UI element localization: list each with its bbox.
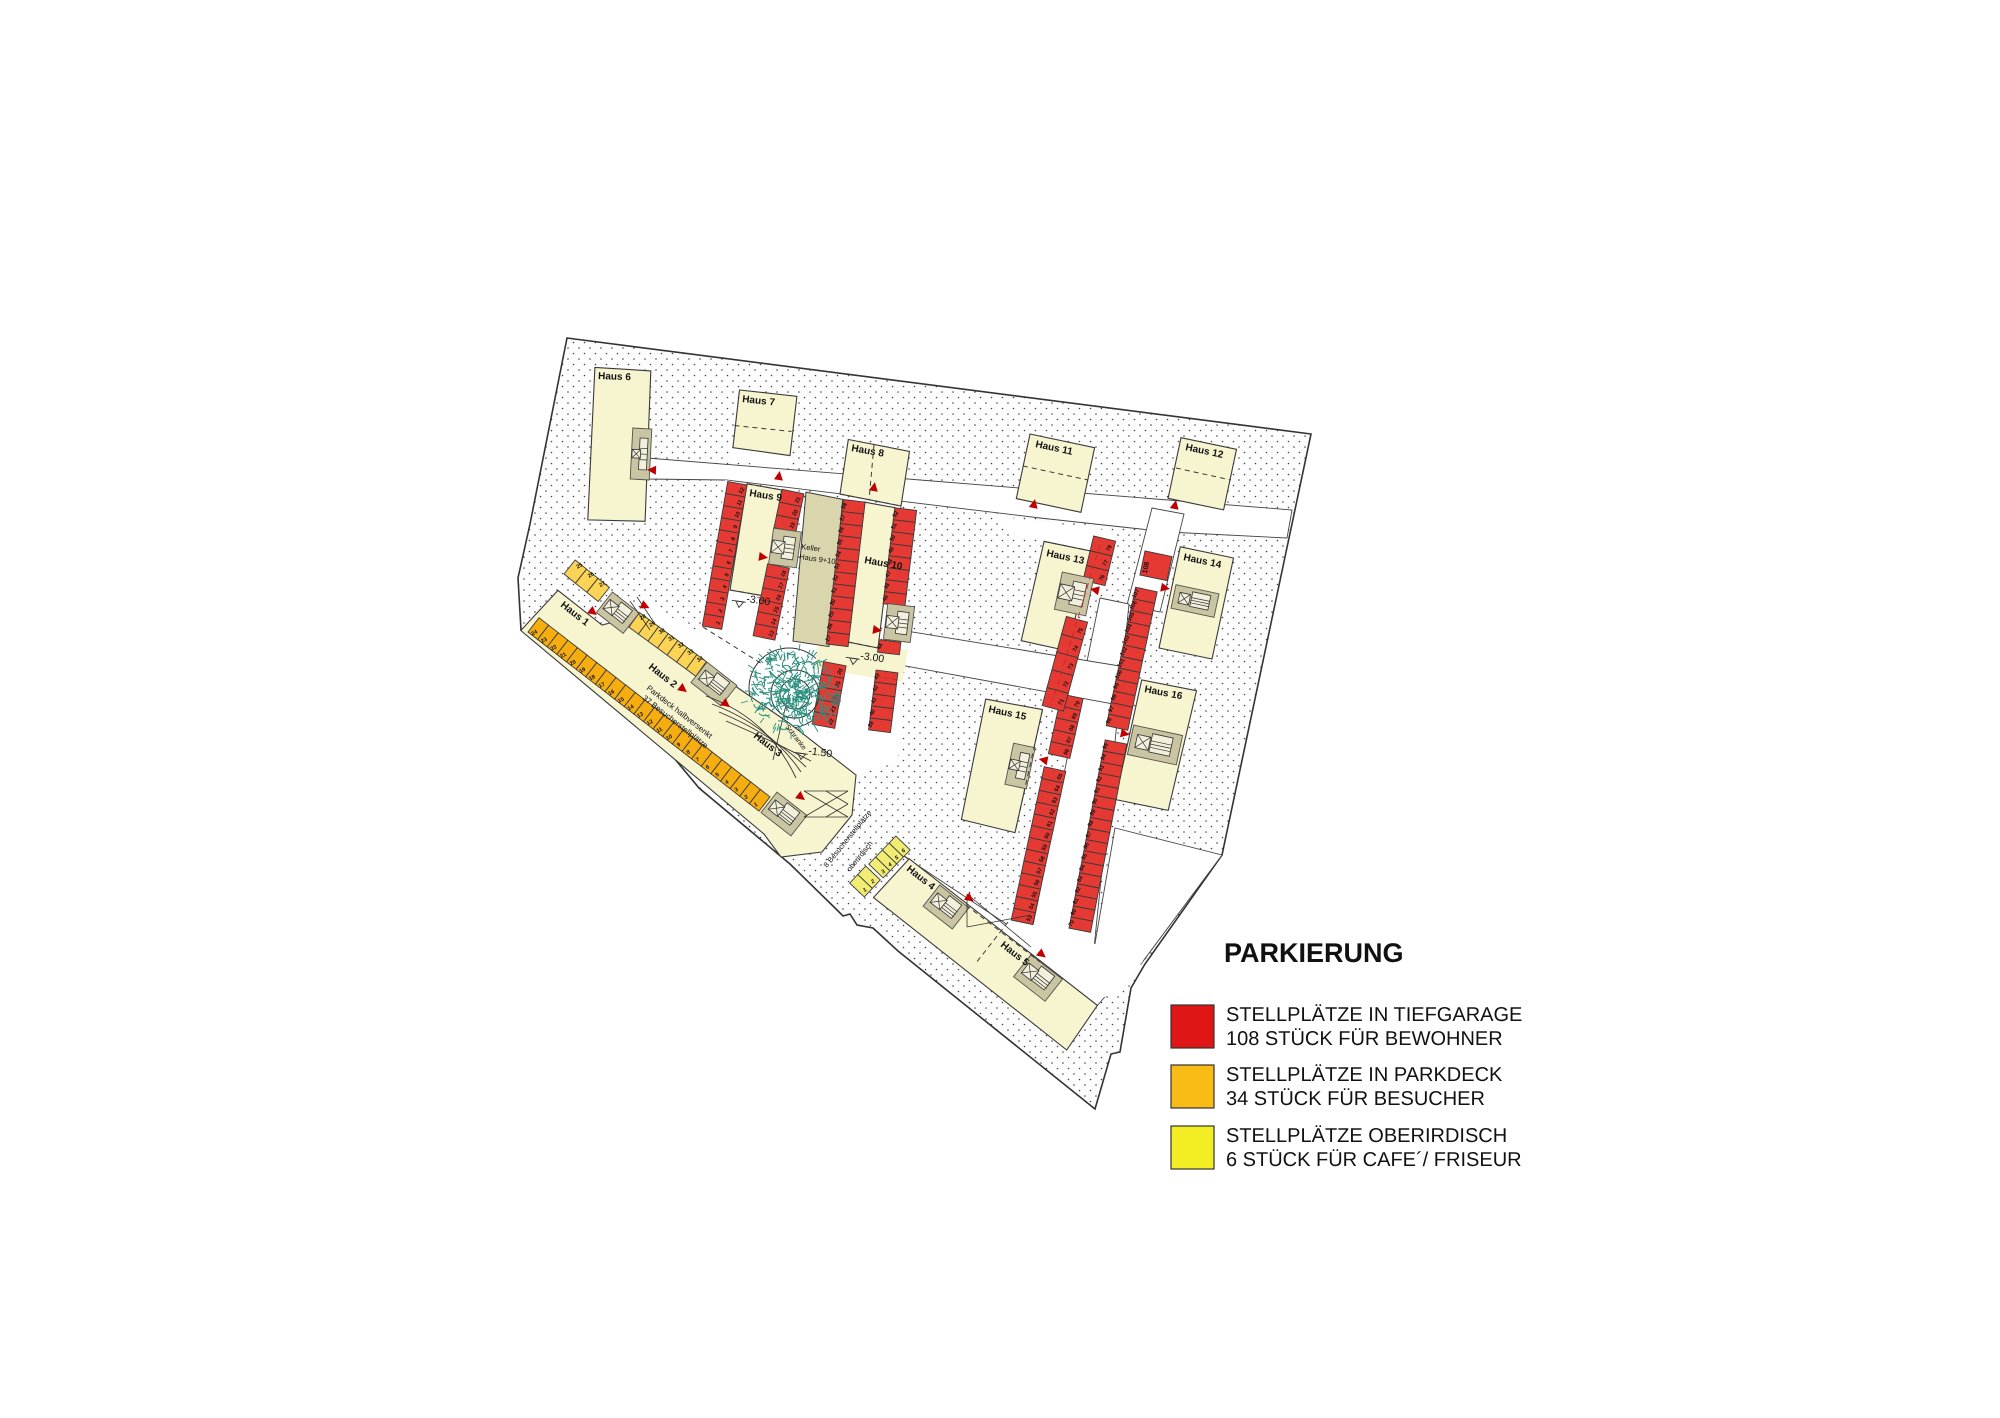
- svg-text:STELLPLÄTZE IN TIEFGARAGE: STELLPLÄTZE IN TIEFGARAGE: [1226, 1004, 1522, 1026]
- svg-text:34 STÜCK FÜR BESUCHER: 34 STÜCK FÜR BESUCHER: [1226, 1088, 1485, 1110]
- svg-text:STELLPLÄTZE IN PARKDECK: STELLPLÄTZE IN PARKDECK: [1226, 1064, 1503, 1086]
- svg-text:Haus 6: Haus 6: [598, 371, 632, 383]
- svg-text:PARKIERUNG: PARKIERUNG: [1224, 938, 1404, 968]
- svg-text:6 STÜCK FÜR CAFE´/ FRISEUR: 6 STÜCK FÜR CAFE´/ FRISEUR: [1226, 1149, 1522, 1171]
- svg-text:108 STÜCK FÜR BEWOHNER: 108 STÜCK FÜR BEWOHNER: [1226, 1028, 1503, 1050]
- svg-text:STELLPLÄTZE OBERIRDISCH: STELLPLÄTZE OBERIRDISCH: [1226, 1125, 1507, 1147]
